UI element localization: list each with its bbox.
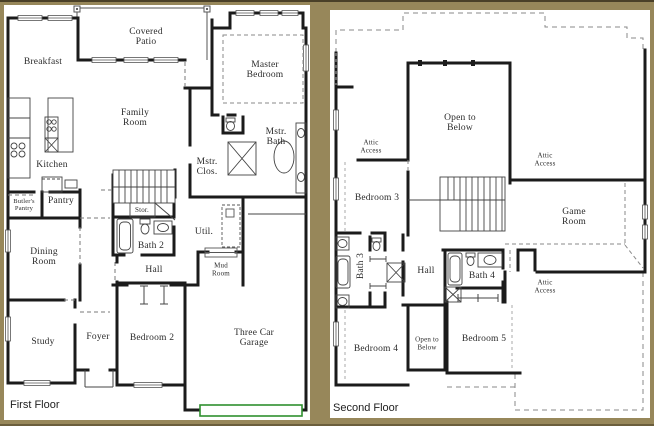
room-label-butlers-pantry: Butler's Pantry	[13, 198, 35, 212]
room-label-attic-access-left: Attic Access	[360, 139, 381, 154]
room-label-master-bedroom: Master Bedroom	[247, 60, 284, 81]
room-label-mstr-bath: Mstr. Bath	[266, 127, 287, 148]
room-label-study: Study	[31, 337, 54, 347]
first-floor-title: First Floor	[10, 399, 60, 411]
room-label-attic-access-bottom: Attic Access	[534, 279, 555, 294]
bedroom5-closet	[458, 294, 498, 302]
room-label-bedroom2: Bedroom 2	[130, 333, 174, 343]
kitchen-fixtures	[8, 98, 77, 192]
room-label-family-room: Family Room	[121, 108, 149, 129]
room-label-mstr-clos: Mstr. Clos.	[197, 157, 218, 178]
second-floor-panel: Attic Access Open to Below Attic Access …	[330, 10, 650, 418]
room-label-util: Util.	[195, 227, 213, 237]
room-label-bath4: Bath 4	[469, 271, 495, 281]
second-floor-plan-drawing	[330, 10, 650, 418]
room-label-bedroom4: Bedroom 4	[354, 344, 398, 354]
room-label-mud-room: Mud Room	[212, 262, 230, 277]
first-floor-panel: Breakfast Covered Patio Family Room Mast…	[4, 5, 310, 420]
room-label-bedroom3: Bedroom 3	[355, 193, 399, 203]
room-label-bath3: Bath 3	[356, 253, 366, 279]
room-label-three-car-garage: Three Car Garage	[226, 328, 282, 349]
room-label-open-to-below-small: Open to Below	[415, 336, 439, 351]
room-label-stor: Stor.	[135, 207, 149, 215]
room-label-hall-1: Hall	[145, 265, 162, 275]
floorplan-sheet: { "page": { "background_color": "#97875a…	[0, 0, 654, 426]
room-label-game-room: Game Room	[562, 207, 586, 228]
room-label-bedroom5: Bedroom 5	[462, 334, 506, 344]
room-label-bath2: Bath 2	[138, 241, 164, 251]
room-label-open-to-below: Open to Below	[444, 113, 476, 134]
garage-door	[200, 405, 302, 416]
stairs	[440, 177, 505, 231]
room-label-hall-2: Hall	[417, 266, 434, 276]
second-floor-title: Second Floor	[333, 402, 398, 414]
room-label-covered-patio: Covered Patio	[129, 27, 163, 48]
room-label-pantry: Pantry	[48, 196, 74, 206]
room-label-kitchen: Kitchen	[36, 160, 67, 170]
room-label-attic-access-right: Attic Access	[534, 152, 555, 167]
room-label-dining-room: Dining Room	[30, 247, 58, 268]
room-label-breakfast: Breakfast	[24, 57, 62, 67]
bedroom2-closet	[140, 286, 168, 304]
room-label-foyer: Foyer	[86, 332, 109, 342]
